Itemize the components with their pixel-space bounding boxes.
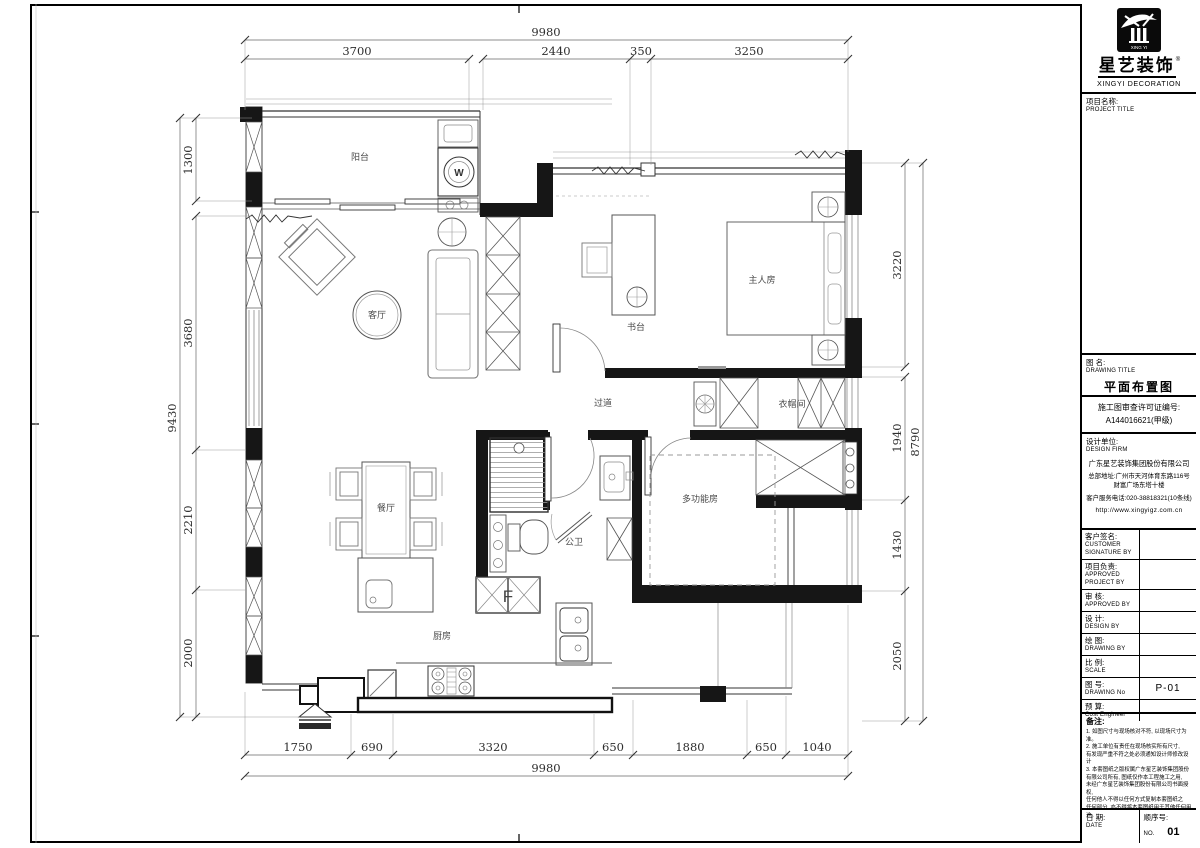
kitchen-counter [556,603,592,665]
title-block: XING YI 星艺装饰® XINGYI DECORATION 项目名称: PR… [1080,4,1196,843]
license-section: 施工图审查许可证编号: A144016621(甲级) [1082,397,1196,434]
lounge-chair [275,215,356,296]
row-label-en: SCALE [1085,667,1136,675]
row-approved-by: 审 核:APPROVED BY [1082,590,1196,612]
toilet-tank [508,524,520,551]
dim-bottom-0: 1750 [283,740,312,754]
row-label-en: APPROVED PROJECT BY [1085,571,1136,587]
dim-right-3: 2050 [890,641,904,670]
drawing-title: 平面布置图 [1086,378,1192,395]
room-label-corridor: 过道 [594,397,612,408]
door-swing [651,438,691,478]
drawing-name-section: 图 名: DRAWING TITLE 平面布置图 [1082,355,1196,397]
brand-block: XING YI 星艺装饰® XINGYI DECORATION [1082,4,1196,94]
door-swing [560,328,605,371]
row-label-cn: 比 例: [1085,658,1136,667]
project-label-en: PROJECT TITLE [1086,106,1192,114]
desk-chair [582,243,612,277]
row-value [1140,590,1196,611]
furniture [262,120,845,729]
room-label-balcony: 阳台 [351,151,369,162]
dim-right-0: 3220 [890,250,904,279]
room-label-dining: 餐厅 [377,502,395,513]
room-label-desk: 书台 [627,321,645,332]
row-label-cn: 项目负责: [1085,562,1136,571]
dim-top-overall: 9980 [531,25,560,39]
sequence-cell: 顺序号: NO. 01 [1140,810,1197,843]
row-drawing-by: 绘 图:DRAWING BY [1082,634,1196,656]
kitchen-sink [560,608,588,633]
dim-bottom-4: 1880 [675,740,704,754]
xingyi-logo-icon: XING YI [1117,8,1161,52]
floor-plan-canvas: 阳台 客厅 主人房 书台 过道 衣帽间 餐厅 多功能房 公卫 厨房 W F [0,0,1200,848]
dim-top-0: 3700 [342,44,371,58]
dim-bottom-2: 3320 [478,740,507,754]
row-customer-signature: 客户签名:CUSTOMER SIGNATURE BY [1082,530,1196,560]
date-label-cn: 日 期: [1086,813,1135,822]
notes-label: 备注: [1086,716,1192,727]
row-label-en: CUSTOMER SIGNATURE BY [1085,541,1136,557]
island-counter [358,558,433,612]
row-value [1140,530,1196,559]
dim-right-1: 1940 [890,423,904,452]
walls [240,99,862,712]
row-label-cn: 审 核: [1085,592,1136,601]
bath-shelf [490,515,506,572]
dim-left-2: 2210 [181,505,195,534]
drawing-sheet: 阳台 客厅 主人房 书台 过道 衣帽间 餐厅 多功能房 公卫 厨房 W F [0,0,1200,848]
row-drawing-no: 图 号:DRAWING No P-01 [1082,678,1196,700]
shower-head [514,443,524,453]
dim-top-1: 2440 [541,44,570,58]
notes-section: 备注: 1. 如图尺寸与现场核对不符, 以现场尺寸为准。 2. 施工单位有责任在… [1082,714,1196,810]
dim-left-0: 1300 [181,145,195,174]
brand-name-en: XINGYI DECORATION [1082,79,1196,88]
row-value [1140,560,1196,589]
drawing-label-en: DRAWING TITLE [1086,367,1192,375]
dim-right-overall: 8790 [908,427,922,456]
row-label-cn: 图 号: [1085,680,1136,689]
wc-door-leaf [556,512,590,540]
bed [727,222,845,335]
row-scale: 比 例:SCALE [1082,656,1196,678]
row-label-cn: 设 计: [1085,614,1136,623]
flue-letter: F [503,587,513,606]
sequence-number: 01 [1167,826,1179,838]
washer-letter: W [454,168,464,179]
dim-right-2: 1430 [890,530,904,559]
dim-bottom-6: 1040 [802,740,831,754]
cabinet-hatch [486,217,520,370]
dim-left-3: 2000 [181,638,195,667]
firm-label-en: DESIGN FIRM [1086,446,1192,454]
note-line: 3. 本套图纸之版权属广东星艺装饰集团股份 [1086,767,1192,775]
dim-left-1: 3680 [181,318,195,347]
date-cell: 日 期: DATE [1082,810,1140,843]
date-row: 日 期: DATE 顺序号: NO. 01 [1082,810,1196,843]
registered-mark: ® [1176,57,1180,63]
license-label: 施工图审查许可证编号: [1082,401,1196,414]
dimensions: 9980 3700 2440 350 3250 1750 690 3320 65… [165,25,927,780]
row-label-cn: 绘 图: [1085,636,1136,645]
row-label-cn: 客户签名: [1085,532,1136,541]
dim-left-overall: 9430 [165,403,179,432]
note-line: 任何他人不得以任何方式复制本套图纸之 [1086,797,1192,805]
firm-address-2: 财富广场东塔十楼 [1086,481,1192,490]
design-firm-section: 设计单位: DESIGN FIRM 广东星艺装饰集团股份有限公司 总部地址:广州… [1082,434,1196,530]
note-line: 2. 施工单位有责任在现场核实所有尺寸, [1086,744,1192,752]
dim-top-2: 350 [630,44,652,58]
room-label-living: 客厅 [368,309,386,320]
toilet [520,520,548,554]
pillow [828,284,841,324]
dim-bottom-5: 650 [755,740,777,754]
seq-label-cn: 顺序号: [1144,813,1193,822]
row-value [1140,656,1196,677]
row-label-en: APPROVED BY [1085,601,1136,609]
sliding-door-panel [275,199,330,204]
room-label-cloak: 衣帽间 [778,398,805,409]
desk [612,215,655,315]
row-label-en: DRAWING BY [1085,645,1136,653]
dim-bottom-1: 690 [361,740,383,754]
room-label-kitchen: 厨房 [433,630,451,641]
date-label-en: DATE [1086,822,1135,830]
brand-name-cn: 星艺装饰 [1098,57,1176,78]
pillow [828,233,841,273]
firm-website: http://www.xingyigz.com.cn [1086,506,1192,515]
firm-address-1: 总部地址:广州市天河体育东路116号 [1086,472,1192,481]
firm-phone: 客户服务电话:020-38818321(10条线) [1086,494,1192,503]
firm-name: 广东星艺装饰集团股份有限公司 [1086,459,1192,468]
island-sink [366,580,392,608]
dim-bottom-3: 650 [602,740,624,754]
drawing-label-cn: 图 名: [1086,358,1192,367]
logo-subtext: XING YI [1131,45,1147,50]
license-number: A144016621(甲级) [1082,414,1196,427]
row-label-en: DRAWING No [1085,689,1136,697]
gas-stove [428,666,474,696]
note-line: 有发现严重不符之处必须通知设计师修改设计 [1086,752,1192,767]
project-label-cn: 项目名称: [1086,97,1192,106]
row-value [1140,634,1196,655]
dim-top-3: 3250 [734,44,763,58]
firm-label-cn: 设计单位: [1086,437,1192,446]
door-leaf [553,324,560,372]
door-swing [551,438,594,498]
row-value [1140,612,1196,633]
drawing-number: P-01 [1140,678,1196,699]
project-title-section: 项目名称: PROJECT TITLE [1082,94,1196,355]
note-line: 未经广东星艺装饰集团股份有限公司书面授权, [1086,782,1192,797]
note-line: 有限公司所有, 图纸仅作本工程施工之用, [1086,775,1192,783]
room-label-master: 主人房 [748,274,775,285]
room-label-multi: 多功能房 [682,493,718,504]
door-leaf [545,437,551,501]
room-label-bath: 公卫 [565,537,583,547]
row-label-en: DESIGN BY [1085,623,1136,631]
seq-no-label: NO. [1144,830,1155,838]
row-design-by: 设 计:DESIGN BY [1082,612,1196,634]
sliding-door-panel [340,205,395,210]
signature-rows: 客户签名:CUSTOMER SIGNATURE BY 项目负责:APPROVED… [1082,530,1196,714]
row-label-cn: 预 算: [1085,702,1136,711]
row-project-lead: 项目负责:APPROVED PROJECT BY [1082,560,1196,590]
note-line: 1. 如图尺寸与现场核对不符, 以现场尺寸为准。 [1086,729,1192,744]
kitchen-sink [560,636,588,661]
dim-bottom-overall: 9980 [531,761,560,775]
